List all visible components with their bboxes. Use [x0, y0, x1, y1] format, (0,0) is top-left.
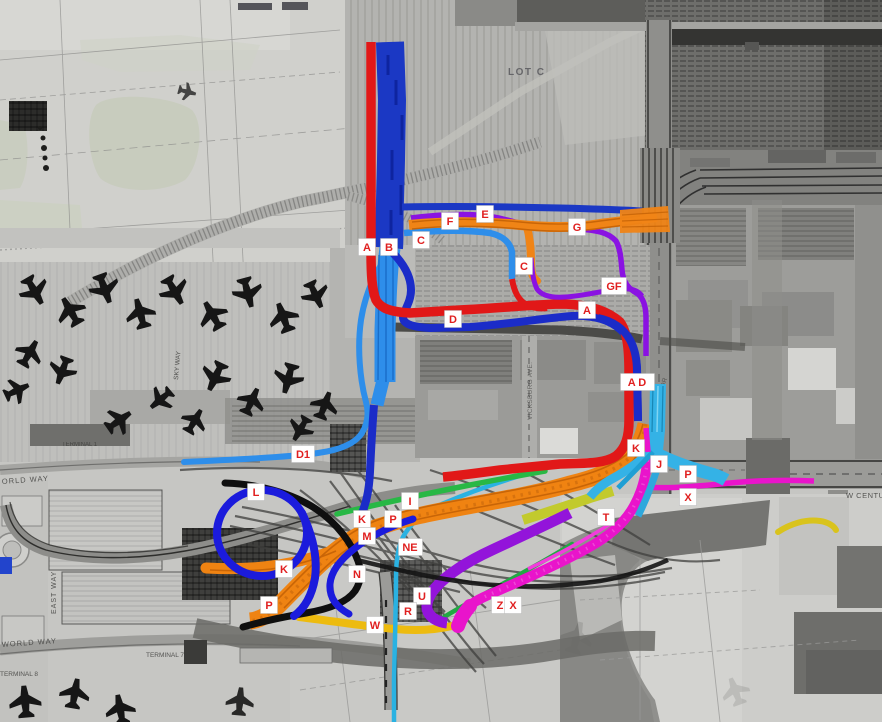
svg-text:LOT C: LOT C: [508, 67, 546, 78]
svg-text:GF: GF: [606, 281, 622, 293]
svg-text:P: P: [684, 469, 691, 481]
svg-text:W CENTURY: W CENTURY: [846, 491, 882, 500]
svg-text:NE: NE: [402, 542, 417, 554]
svg-text:B: B: [385, 242, 393, 254]
svg-text:TERMINAL 7: TERMINAL 7: [146, 652, 184, 659]
svg-text:Z: Z: [497, 600, 504, 612]
svg-text:P: P: [265, 600, 272, 612]
svg-text:VICKSBURG AVE.: VICKSBURG AVE.: [527, 362, 534, 420]
svg-text:D1: D1: [296, 449, 310, 461]
svg-text:W: W: [370, 620, 381, 632]
svg-text:J: J: [656, 459, 662, 471]
svg-text:M: M: [362, 531, 371, 543]
svg-text:K: K: [280, 564, 288, 576]
svg-text:A: A: [363, 242, 371, 254]
svg-text:L: L: [253, 487, 260, 499]
svg-text:X: X: [509, 600, 517, 612]
svg-text:C: C: [520, 261, 528, 273]
svg-text:T: T: [603, 512, 610, 524]
svg-text:D: D: [449, 314, 457, 326]
svg-text:TERMINAL 8: TERMINAL 8: [0, 671, 38, 678]
svg-text:X: X: [684, 492, 692, 504]
svg-text:G: G: [573, 222, 582, 234]
svg-text:K: K: [358, 514, 366, 526]
svg-text:C: C: [417, 235, 425, 247]
svg-text:E: E: [481, 209, 488, 221]
svg-text:A: A: [583, 305, 591, 317]
svg-text:U: U: [418, 591, 426, 603]
svg-text:K: K: [632, 443, 640, 455]
svg-text:A D: A D: [628, 377, 647, 389]
svg-text:F: F: [447, 216, 454, 228]
svg-text:N: N: [353, 569, 361, 581]
svg-text:I: I: [408, 496, 411, 508]
svg-text:EAST WAY: EAST WAY: [51, 571, 58, 614]
svg-text:R: R: [404, 606, 412, 618]
svg-text:TERMINAL 1: TERMINAL 1: [62, 442, 98, 448]
svg-text:P: P: [389, 514, 396, 526]
